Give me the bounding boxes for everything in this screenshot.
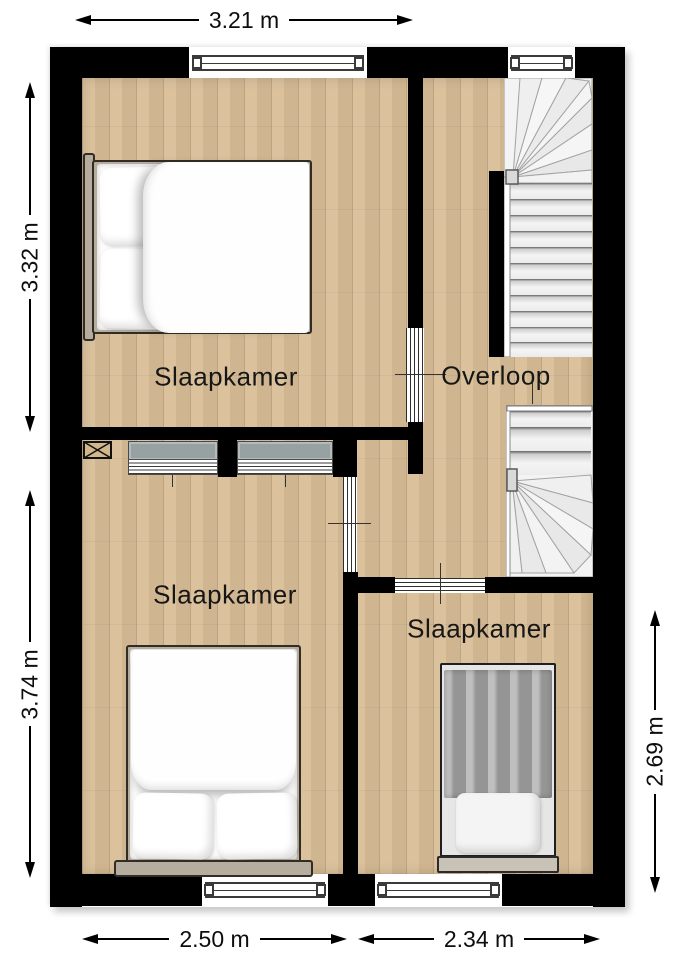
dimension-left-lower: 3.74 m: [15, 490, 45, 878]
dimension-value: 3.21 m: [209, 7, 279, 34]
dimension-line: [91, 19, 199, 21]
staircase-upper-drawing: [504, 78, 592, 357]
wall-bedroom3-top-right: [485, 577, 593, 593]
arrowhead-down-icon: [25, 862, 35, 878]
window-frame: [378, 882, 499, 898]
window-top-bedroom1: [189, 47, 367, 78]
bed-pillow: [456, 793, 540, 853]
shaft-x-icon: [83, 441, 112, 459]
window-cap: [510, 57, 520, 69]
arrowhead-left-icon: [75, 15, 91, 25]
closet-shelves: [128, 459, 218, 475]
window-frame: [192, 55, 364, 71]
bed-footboard: [437, 856, 559, 873]
arrowhead-down-icon: [25, 416, 35, 432]
single-bed: [437, 663, 559, 873]
window-cap: [563, 57, 573, 69]
dimension-value: 2.34 m: [444, 926, 514, 953]
window-cap: [490, 884, 500, 896]
wall-between-bedrooms-horizontal: [82, 427, 423, 440]
dimension-left-upper: 3.32 m: [15, 82, 45, 432]
dimension-line: [654, 794, 656, 878]
arrowhead-left-icon: [82, 934, 98, 944]
dimension-line: [260, 938, 331, 940]
window-cap: [204, 884, 214, 896]
arrowhead-down-icon: [650, 877, 660, 893]
dimension-line: [654, 626, 656, 710]
wall-outer-bottom: [50, 874, 625, 906]
dimension-label-wrap: 2.69 m: [640, 710, 670, 794]
staircase-upper: [504, 78, 592, 357]
staircase-lower-drawing: [506, 405, 593, 577]
wall-bedroom3-top-left: [358, 577, 395, 593]
staircase-lower: [506, 405, 593, 577]
closet-body: [128, 441, 218, 461]
wall-bedroom2-bedroom3: [343, 572, 358, 874]
closet-body: [237, 441, 333, 461]
dimension-right: 2.69 m: [640, 610, 670, 893]
door-marker-line: [395, 374, 446, 375]
dimension-line: [98, 938, 169, 940]
dimension-line: [29, 98, 31, 215]
door-marker-line: [440, 563, 441, 604]
window-bottom-bedroom2: [202, 874, 328, 906]
bed-duvet: [131, 650, 296, 790]
bed-footboard: [114, 860, 313, 877]
window-cap: [377, 884, 387, 896]
wall-closet-pillar-1: [218, 440, 237, 477]
window-cap: [316, 884, 326, 896]
dimension-line: [29, 299, 31, 416]
door-overloop-bedroom1: [406, 328, 424, 422]
dimension-label-wrap: 3.32 m: [15, 215, 45, 299]
arrowhead-left-icon: [358, 934, 374, 944]
double-bed-bottom: [114, 645, 313, 877]
floorplan-canvas: Slaapkamer Overloop Slaapkamer Slaapkame…: [0, 0, 679, 960]
arrowhead-right-icon: [331, 934, 347, 944]
double-bed-top: [83, 153, 312, 341]
window-frame: [205, 882, 325, 898]
window-bottom-bedroom3: [375, 874, 502, 906]
window-cap: [192, 57, 202, 69]
wall-bedroom1-overloop: [408, 78, 423, 328]
bed-duvet: [444, 670, 552, 798]
wall-outer-right: [593, 47, 625, 907]
dimension-value: 3.74 m: [17, 649, 44, 719]
arrowhead-right-icon: [584, 934, 600, 944]
wall-closet-pillar-2: [333, 440, 357, 477]
room-label-slaapkamer-1: Slaapkamer: [154, 362, 298, 393]
room-label-overloop: Overloop: [441, 361, 551, 392]
wall-stairwell: [489, 171, 504, 357]
room-label-slaapkamer-2: Slaapkamer: [153, 580, 297, 611]
dimension-value: 2.50 m: [179, 926, 249, 953]
door-overloop-bedroom2: [343, 477, 357, 572]
arrowhead-up-icon: [650, 610, 660, 626]
closet-shelves: [237, 459, 333, 475]
arrowhead-up-icon: [25, 82, 35, 98]
arrowhead-up-icon: [25, 490, 35, 506]
arrowhead-right-icon: [397, 15, 413, 25]
wall-outer-left: [50, 47, 82, 907]
dimension-bottom-left: 2.50 m: [82, 926, 347, 952]
dimension-line: [29, 726, 31, 862]
bed-pillow: [132, 792, 213, 859]
bed-pillow: [216, 792, 297, 859]
window-cap: [354, 57, 364, 69]
dimension-bottom-right: 2.34 m: [358, 926, 600, 952]
closet-2: [237, 441, 333, 473]
dimension-value: 3.32 m: [17, 222, 44, 292]
door-marker-line: [328, 523, 371, 524]
dimension-line: [374, 938, 434, 940]
room-label-slaapkamer-3: Slaapkamer: [407, 614, 551, 645]
window-top-stairwell: [508, 47, 575, 78]
dimension-label-wrap: 3.74 m: [15, 642, 45, 726]
dimension-line: [29, 506, 31, 642]
closet-1: [128, 441, 218, 473]
dimension-value: 2.69 m: [642, 716, 669, 786]
dimension-top: 3.21 m: [75, 7, 413, 33]
dimension-line: [524, 938, 584, 940]
bed-duvet: [143, 162, 309, 333]
dimension-line: [289, 19, 397, 21]
